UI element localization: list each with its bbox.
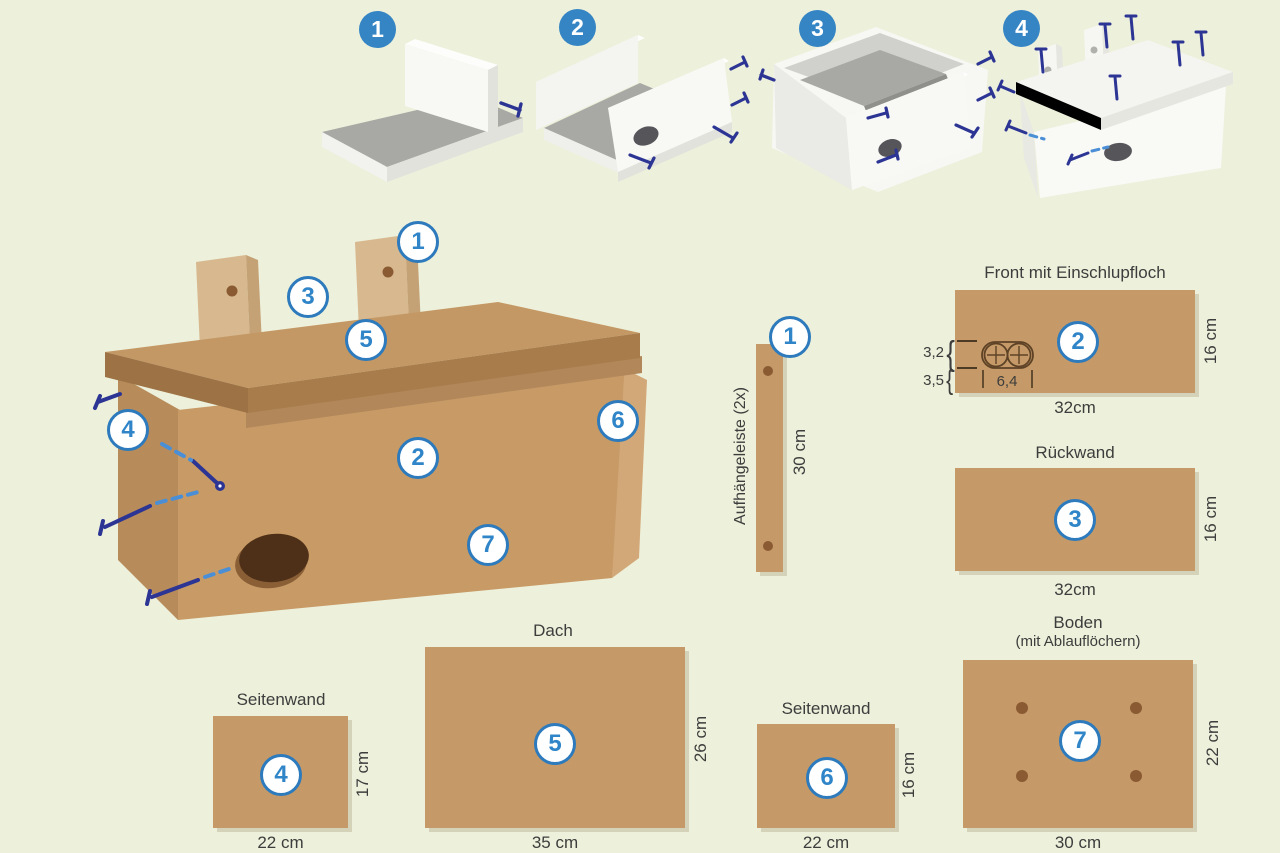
strip-hole bbox=[763, 541, 773, 551]
dim-tick bbox=[957, 340, 977, 342]
badge-number: 7 bbox=[1073, 727, 1086, 755]
back-panel-title: Rückwand bbox=[925, 443, 1225, 463]
step-2-number: 2 bbox=[571, 14, 584, 41]
badge-number: 2 bbox=[411, 444, 424, 472]
bottom-height-label: 22 cm bbox=[1203, 713, 1223, 773]
step-1-number: 1 bbox=[371, 16, 384, 43]
step-3-badge: 3 bbox=[799, 10, 836, 47]
badge-number: 1 bbox=[783, 323, 796, 351]
back-height-label: 16 cm bbox=[1201, 489, 1221, 549]
assembly-badge-2: 2 bbox=[397, 437, 439, 479]
assembly-badge-5: 5 bbox=[345, 319, 387, 361]
side-a-title: Seitenwand bbox=[181, 690, 381, 710]
hanging-strip-length-label: 30 cm bbox=[790, 422, 810, 482]
badge-number: 3 bbox=[301, 283, 314, 311]
dim-tick bbox=[957, 367, 977, 369]
part-badge-3: 3 bbox=[1054, 499, 1096, 541]
bottom-width-label: 30 cm bbox=[963, 833, 1193, 853]
front-height-label: 16 cm bbox=[1201, 311, 1221, 371]
roof-width-label: 35 cm bbox=[425, 833, 685, 853]
step-2-badge: 2 bbox=[559, 9, 596, 46]
badge-number: 4 bbox=[274, 761, 287, 789]
badge-number: 5 bbox=[548, 730, 561, 758]
roof-title: Dach bbox=[453, 621, 653, 641]
front-panel-title: Front mit Einschlupfloch bbox=[925, 263, 1225, 283]
drain-hole bbox=[1016, 702, 1028, 714]
drain-hole bbox=[1016, 770, 1028, 782]
drain-hole bbox=[1130, 770, 1142, 782]
step-3-illustration bbox=[760, 0, 1000, 190]
part-badge-5: 5 bbox=[534, 723, 576, 765]
assembly-badge-4: 4 bbox=[107, 409, 149, 451]
strip-hole bbox=[227, 286, 238, 297]
hanging-strip-panel bbox=[756, 344, 783, 572]
badge-number: 6 bbox=[820, 764, 833, 792]
part-badge-2: 2 bbox=[1057, 321, 1099, 363]
assembly-badge-7: 7 bbox=[467, 524, 509, 566]
badge-number: 3 bbox=[1068, 506, 1081, 534]
step-4-number: 4 bbox=[1015, 15, 1028, 42]
badge-number: 5 bbox=[359, 326, 372, 354]
bottom-title: Boden bbox=[978, 613, 1178, 633]
side-b-height-label: 16 cm bbox=[899, 745, 919, 805]
front-width-label: 32cm bbox=[955, 398, 1195, 418]
hanging-strip-label: Aufhängeleiste (2x) bbox=[732, 371, 750, 541]
badge-number: 7 bbox=[481, 531, 494, 559]
hole-top-dim: 3,2 bbox=[900, 344, 944, 361]
assembly-diagram: 1 2 bbox=[0, 0, 1280, 853]
step-1-badge: 1 bbox=[359, 11, 396, 48]
side-a-width-label: 22 cm bbox=[213, 833, 348, 853]
drain-hole bbox=[1130, 702, 1142, 714]
open-box bbox=[772, 27, 988, 192]
brace: { bbox=[946, 366, 953, 394]
badge-number: 1 bbox=[411, 228, 424, 256]
part-badge-7: 7 bbox=[1059, 720, 1101, 762]
step-4-badge: 4 bbox=[1003, 10, 1040, 47]
bottom-subtitle: (mit Ablauflöchern) bbox=[978, 633, 1178, 650]
strip-hole bbox=[383, 267, 394, 278]
badge-number: 2 bbox=[1071, 328, 1084, 356]
step-1-illustration bbox=[305, 0, 525, 190]
badge-number: 4 bbox=[121, 416, 134, 444]
side-a-height-label: 17 cm bbox=[353, 744, 373, 804]
part-badge-4: 4 bbox=[260, 754, 302, 796]
strip-hole bbox=[763, 366, 773, 376]
side-b-width-label: 22 cm bbox=[757, 833, 895, 853]
badge-number: 6 bbox=[611, 407, 624, 435]
assembly-badge-6: 6 bbox=[597, 400, 639, 442]
part-badge-6: 6 bbox=[806, 757, 848, 799]
step-3-number: 3 bbox=[811, 15, 824, 42]
side-b-title: Seitenwand bbox=[726, 699, 926, 719]
back-width-label: 32cm bbox=[955, 580, 1195, 600]
hole-bottom-dim: 3,5 bbox=[900, 372, 944, 389]
assembly-badge-3: 3 bbox=[287, 276, 329, 318]
roof-height-label: 26 cm bbox=[691, 709, 711, 769]
screw-head bbox=[215, 481, 225, 491]
hole-width-label: 6,4 bbox=[997, 373, 1018, 390]
part-badge-1: 1 bbox=[769, 316, 811, 358]
assembly-badge-1: 1 bbox=[397, 221, 439, 263]
